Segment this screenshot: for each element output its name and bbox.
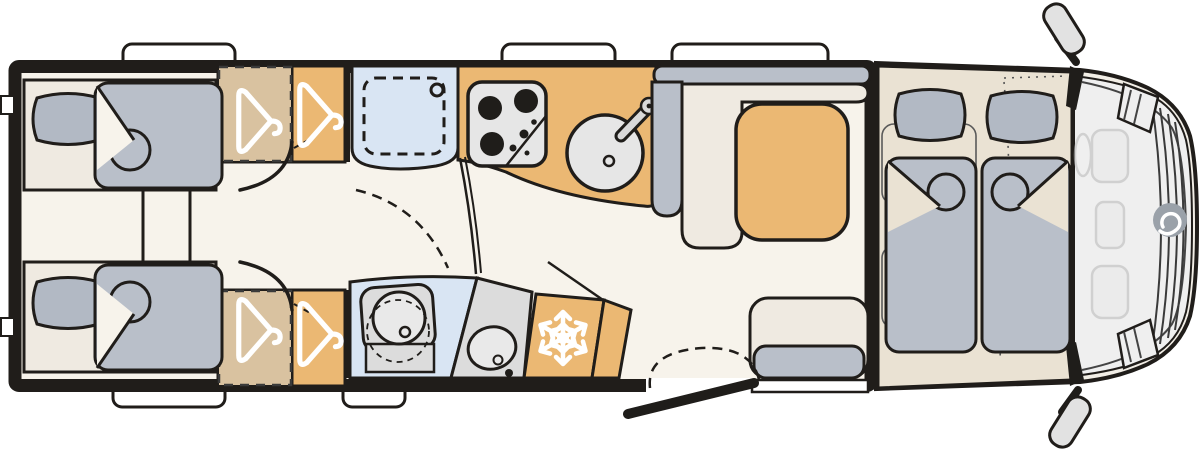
hob-knob — [520, 130, 529, 139]
wardrobe-under-bed-zone — [219, 67, 291, 161]
mirror-head — [1040, 0, 1089, 58]
washroom — [350, 277, 532, 378]
driver-seat — [1092, 130, 1128, 182]
toilet — [360, 284, 436, 372]
mirror-head — [1046, 393, 1095, 451]
floorplan-canvas — [0, 0, 1200, 451]
hob-knob — [525, 151, 530, 156]
bed-step — [143, 190, 190, 262]
shower-cubicle — [352, 66, 458, 169]
hob-knob — [510, 145, 517, 152]
bench-backrest-side — [652, 82, 682, 216]
basin-tap-dot — [505, 369, 513, 377]
mirror-top — [1040, 0, 1089, 62]
front-emblem-logo — [1153, 203, 1187, 237]
door-threshold — [752, 380, 868, 392]
dinette-table — [736, 104, 848, 240]
side-bench — [750, 298, 868, 378]
passenger-seat — [1092, 266, 1128, 318]
burner-icon — [514, 89, 538, 113]
mattress-right — [982, 92, 1070, 353]
pillow — [895, 90, 965, 141]
mattress-left — [886, 90, 976, 353]
bench-backrest-top — [654, 66, 870, 84]
pillow — [987, 92, 1057, 143]
rear-light-notch-bottom — [1, 318, 14, 336]
pillow — [33, 278, 103, 329]
burner-icon — [478, 96, 502, 120]
center-console — [1096, 202, 1124, 248]
cooktop — [468, 82, 546, 166]
mirror-bottom — [1046, 390, 1095, 451]
hob-knob — [531, 119, 537, 125]
side-bench-cushion — [754, 346, 864, 378]
drop-down-bed — [878, 66, 1084, 388]
rear-light-notch-top — [1, 96, 14, 114]
toilet-base — [366, 344, 434, 372]
floorplan-svg — [0, 0, 1200, 451]
burner-icon — [480, 132, 504, 156]
pillow — [33, 94, 103, 145]
